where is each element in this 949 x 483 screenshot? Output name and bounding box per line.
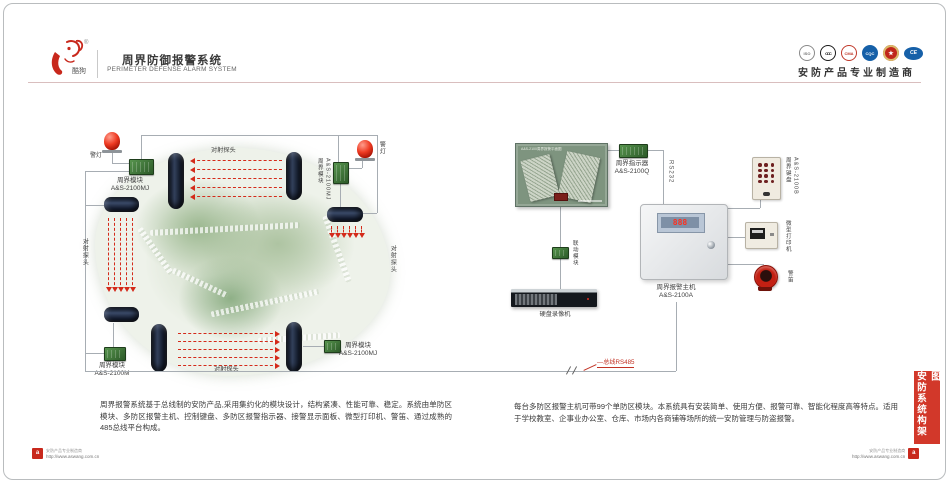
side-tab-label: 安防系统构架图	[913, 371, 941, 444]
beam-arrow	[132, 218, 133, 290]
alarm-host-unit: 888	[640, 204, 728, 280]
keypad-key	[764, 169, 768, 173]
alarm-light	[357, 140, 373, 158]
registered-mark: ®	[84, 40, 88, 46]
linkage-module-pcb	[552, 247, 569, 259]
footer-logo-icon: a	[908, 448, 919, 459]
wire	[676, 302, 677, 371]
beam-arrow	[343, 226, 344, 236]
beam-arrow	[178, 349, 278, 350]
alarm-light	[104, 132, 120, 150]
wire	[141, 135, 377, 136]
host-display: 888	[657, 213, 705, 233]
dvr-label: 硬盘录像机	[528, 311, 582, 319]
page-title-en: PERIMETER DEFENSE ALARM SYSTEM	[102, 66, 242, 73]
alarm-display-panel: A&S-2100周界报警平面图	[515, 143, 608, 207]
wire	[726, 264, 764, 265]
beam-detector	[168, 153, 184, 209]
beam-arrow	[126, 218, 127, 290]
rs485-bus-line	[85, 371, 676, 372]
perimeter-module-pcb	[333, 162, 349, 184]
wire	[338, 135, 339, 162]
perimeter-module-pcb	[104, 347, 126, 361]
beam-arrow	[361, 226, 362, 236]
beam-label: 对射探头	[211, 147, 236, 155]
description-right: 每台多防区报警主机可带99个单防区模块。本系统具有安装简单、使用方便、报警可靠、…	[514, 401, 898, 424]
wire	[340, 182, 341, 207]
module-name: 周界模块	[107, 177, 153, 185]
wire	[348, 168, 362, 169]
header-divider-horizontal	[28, 82, 921, 83]
beam-arrow	[355, 226, 356, 236]
wire	[113, 323, 114, 347]
beam-arrow	[192, 160, 282, 161]
footer-url: http://www.aswang.com.cn	[46, 454, 99, 459]
module-model: A&S-2100MJ	[107, 185, 153, 193]
footer-right: 安防产品专业制造商 http://www.aswang.com.cn a	[852, 448, 919, 459]
wire	[726, 237, 745, 238]
keypad-key	[758, 163, 762, 167]
module-name: 周界模块	[317, 158, 323, 184]
beam-arrow	[337, 226, 338, 236]
alarm-light-label: 警灯	[377, 141, 385, 163]
module-name: 周界模块	[334, 342, 382, 350]
keypad-key	[771, 169, 775, 173]
host-led-readout: 888	[661, 217, 699, 228]
siren-base	[758, 287, 772, 291]
beam-arrow	[331, 226, 332, 236]
footer-left: a 安防产品专业制造商 http://www.aswang.com.cn	[32, 448, 99, 459]
keypad-key	[771, 174, 775, 178]
wire	[363, 213, 377, 214]
keypad-key	[758, 174, 762, 178]
beam-arrow	[114, 218, 115, 290]
ccc-certification-icon: CCC	[820, 45, 836, 61]
siren-label: 警笛	[785, 270, 793, 290]
keypad-model: A&S-2100B	[792, 157, 798, 195]
footer-logo-icon: a	[32, 448, 43, 459]
beam-detector	[286, 152, 302, 200]
panel-caption-mark	[578, 200, 602, 202]
wire	[85, 353, 104, 354]
beam-label: 对射探头	[80, 238, 88, 278]
ce-certification-icon: CE	[904, 47, 923, 60]
beam-detector	[151, 324, 167, 372]
keypad-key	[758, 180, 762, 184]
wire	[303, 346, 324, 347]
cma-certification-icon: CMA	[841, 45, 857, 61]
beam-arrow	[192, 178, 282, 179]
iso-certification-icon: ISO	[799, 45, 815, 61]
keypad-name: 周界键盘	[785, 157, 791, 183]
printer-paper-slot	[750, 228, 765, 239]
beam-arrow	[349, 226, 350, 236]
printer-unit	[745, 222, 778, 249]
header-divider-vertical	[97, 50, 98, 78]
cqc-certification-icon: CQC	[862, 45, 878, 61]
host-name: 周界报警主机	[648, 284, 704, 292]
wire	[663, 150, 664, 204]
dvr-front-vents	[515, 294, 557, 305]
beam-detector	[286, 322, 302, 372]
header-slogan: 安防产品专业制造商	[798, 64, 918, 79]
host-model: A&S-2100A	[648, 292, 704, 300]
side-tab: 安防系统构架图	[914, 371, 940, 444]
indicator-model: A&S-2100Q	[604, 168, 660, 176]
host-lock-icon	[707, 241, 715, 249]
certification-icons-row: ISO CCC CMA CQC ★ CE	[799, 45, 923, 61]
wire	[726, 208, 760, 209]
beam-label: 对射探头	[388, 245, 396, 285]
wire	[85, 205, 104, 206]
description-left: 周界报警系统基于总线制的安防产品,采用集约化的模块设计，结构紧凑、性能可靠、稳定…	[100, 399, 452, 434]
wire	[112, 163, 130, 164]
perimeter-module-pcb	[129, 159, 154, 175]
keypad-key	[764, 180, 768, 184]
brand-name: 酷狗	[72, 66, 86, 76]
beam-detector	[104, 197, 139, 212]
wire	[141, 135, 142, 159]
beam-detector	[327, 207, 363, 222]
perimeter-indicator-pcb	[619, 144, 648, 158]
beam-arrow	[192, 196, 282, 197]
keypad-key	[771, 163, 775, 167]
siren-unit	[754, 265, 778, 289]
printer-button	[770, 233, 774, 236]
module-model: A&S-2100MJ	[324, 158, 330, 200]
footer-url: http://www.aswang.com.cn	[852, 454, 905, 459]
keypad-key	[764, 174, 768, 178]
wire	[646, 150, 663, 151]
keypad-unit	[752, 157, 781, 200]
beam-arrow	[192, 169, 282, 170]
alarm-light-label: 警灯	[90, 153, 102, 161]
brochure-page: ® 酷狗 周界防御报警系统 PERIMETER DEFENSE ALARM SY…	[0, 0, 949, 483]
dvr-led	[587, 298, 589, 300]
bus-label: —总线RS485	[597, 357, 634, 368]
keypad-key	[764, 163, 768, 167]
beam-detector	[104, 307, 139, 322]
panel-title: A&S-2100周界报警平面图	[521, 147, 561, 152]
beam-arrow	[192, 187, 282, 188]
keypad-enter-key	[763, 192, 770, 196]
keypad-key	[771, 180, 775, 184]
printer-label: 微型打印机	[783, 220, 791, 258]
module-name: 周界模块	[86, 362, 138, 370]
medal-certification-icon: ★	[883, 45, 899, 61]
keypad-key	[758, 169, 762, 173]
beam-arrow	[178, 357, 278, 358]
module-model: A&S-2100MJ	[334, 350, 382, 358]
rs232-label: RS232	[666, 160, 674, 194]
beam-arrow	[178, 341, 278, 342]
indicator-name: 周界指示器	[604, 160, 660, 168]
linkage-module-label: 联动模块	[570, 240, 578, 276]
panel-control-chip	[554, 193, 568, 201]
beam-arrow	[120, 218, 121, 290]
beam-arrow	[178, 333, 278, 334]
beam-arrow	[108, 218, 109, 290]
dvr-unit	[511, 289, 597, 307]
printer-paper	[752, 230, 763, 233]
wire	[85, 171, 129, 172]
